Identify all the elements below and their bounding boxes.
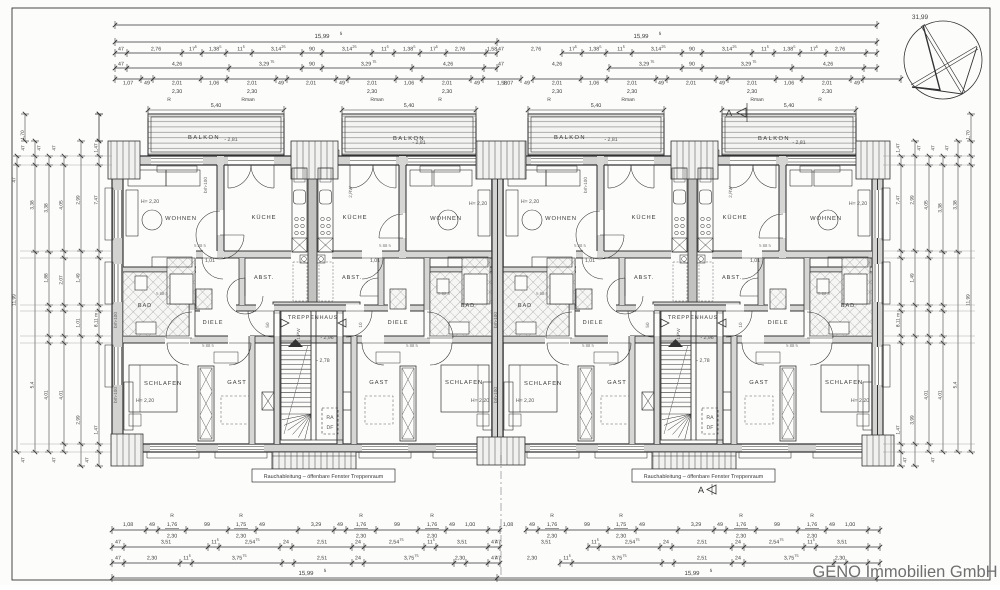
- svg-text:90: 90: [309, 46, 315, 52]
- svg-text:1,58: 1,58: [487, 46, 497, 52]
- svg-text:SCHLAFEN: SCHLAFEN: [445, 379, 483, 386]
- svg-text:5 88 5: 5 88 5: [536, 291, 548, 296]
- svg-text:2,99: 2,99: [76, 195, 82, 205]
- svg-text:3,99: 3,99: [910, 415, 916, 425]
- svg-text:5: 5: [195, 45, 197, 49]
- svg-text:15,99: 15,99: [314, 33, 330, 40]
- svg-text:DIELE: DIELE: [388, 320, 409, 326]
- svg-text:2,01: 2,01: [686, 80, 696, 86]
- svg-text:47: 47: [52, 145, 58, 151]
- svg-text:5,4: 5,4: [953, 381, 959, 388]
- svg-text:5,40: 5,40: [784, 103, 795, 109]
- svg-text:H= 2,20: H= 2,20: [521, 199, 539, 205]
- svg-text:2,54: 2,54: [389, 539, 399, 545]
- svg-text:ABST.: ABST.: [634, 275, 654, 281]
- svg-text:2,76: 2,76: [531, 46, 541, 52]
- svg-text:49: 49: [449, 522, 455, 528]
- svg-text:R: R: [547, 97, 551, 103]
- svg-text:BALKON: BALKON: [554, 134, 586, 141]
- svg-text:1,01: 1,01: [585, 258, 595, 264]
- svg-text:GAST: GAST: [369, 379, 388, 386]
- svg-text:3,38: 3,38: [44, 203, 50, 213]
- svg-text:49: 49: [149, 522, 155, 528]
- svg-text:SCHLAFEN: SCHLAFEN: [144, 380, 182, 387]
- svg-text:5: 5: [793, 45, 795, 49]
- svg-text:99: 99: [584, 522, 590, 528]
- svg-text:WOHNEN: WOHNEN: [810, 215, 842, 222]
- svg-text:1,70: 1,70: [966, 130, 972, 140]
- svg-text:3,14: 3,14: [651, 46, 661, 52]
- svg-text:2,76: 2,76: [835, 46, 845, 52]
- svg-text:7,47: 7,47: [896, 195, 902, 205]
- svg-text:2,51: 2,51: [697, 539, 707, 545]
- svg-text:75: 75: [622, 554, 626, 558]
- svg-text:49: 49: [339, 80, 345, 86]
- svg-text:R: R: [619, 513, 623, 519]
- svg-text:8,11 m: 8,11 m: [94, 313, 100, 327]
- svg-text:49: 49: [529, 522, 535, 528]
- svg-text:2,30: 2,30: [455, 555, 465, 561]
- svg-text:1,76: 1,76: [167, 522, 177, 528]
- svg-text:3,75: 3,75: [232, 555, 242, 561]
- svg-text:1,07: 1,07: [123, 80, 133, 86]
- svg-text:47: 47: [945, 145, 951, 151]
- svg-text:brh-100: brh-100: [583, 177, 588, 193]
- svg-text:4,26: 4,26: [172, 61, 182, 67]
- svg-text:2,01: 2,01: [172, 80, 182, 86]
- svg-text:25: 25: [352, 45, 356, 49]
- svg-text:1,06: 1,06: [784, 80, 794, 86]
- svg-text:49: 49: [854, 80, 860, 86]
- svg-text:1,00: 1,00: [845, 522, 855, 528]
- svg-text:2,01: 2,01: [627, 80, 637, 86]
- svg-text:1,76: 1,76: [356, 522, 366, 528]
- svg-text:1,49: 1,49: [76, 273, 82, 283]
- svg-text:2,99: 2,99: [76, 415, 82, 425]
- svg-text:- 2,96: - 2,96: [320, 335, 333, 341]
- svg-text:5 88 5: 5 88 5: [202, 343, 214, 348]
- svg-text:GAST: GAST: [749, 379, 768, 386]
- svg-text:47: 47: [21, 145, 27, 151]
- svg-text:2,RW: 2,RW: [728, 186, 733, 198]
- svg-text:4,05: 4,05: [59, 200, 65, 210]
- svg-text:2,30: 2,30: [822, 89, 832, 95]
- svg-text:75: 75: [635, 538, 639, 542]
- svg-text:15,99: 15,99: [298, 570, 314, 577]
- svg-text:24: 24: [283, 539, 289, 545]
- svg-text:2,30: 2,30: [367, 89, 377, 95]
- svg-text:2,30: 2,30: [147, 555, 157, 561]
- svg-text:KÜCHE: KÜCHE: [252, 214, 277, 221]
- svg-text:3,14: 3,14: [271, 46, 281, 52]
- svg-text:DIELE: DIELE: [768, 320, 789, 326]
- svg-text:1,38: 1,38: [403, 46, 413, 52]
- svg-text:R: R: [739, 513, 743, 519]
- svg-text:3,29: 3,29: [741, 61, 751, 67]
- svg-text:90: 90: [689, 46, 695, 52]
- svg-text:1,01: 1,01: [76, 318, 82, 328]
- svg-text:10: 10: [738, 322, 743, 328]
- svg-text:BAD: BAD: [461, 303, 475, 309]
- svg-text:49: 49: [658, 80, 664, 86]
- svg-text:5: 5: [219, 45, 221, 49]
- svg-text:5: 5: [813, 538, 815, 542]
- svg-text:5 88 5: 5 88 5: [156, 291, 168, 296]
- svg-text:10: 10: [358, 322, 363, 328]
- svg-text:H= 2,20: H= 2,20: [849, 201, 867, 207]
- svg-text:- 2,81: - 2,81: [224, 137, 237, 143]
- svg-text:A: A: [698, 485, 704, 495]
- svg-text:1,06: 1,06: [589, 80, 599, 86]
- svg-text:Rman: Rman: [241, 97, 255, 103]
- svg-text:ABST.: ABST.: [254, 275, 274, 281]
- svg-text:3,29: 3,29: [691, 522, 701, 528]
- svg-text:4,26: 4,26: [823, 61, 833, 67]
- svg-text:24: 24: [735, 539, 741, 545]
- svg-text:4,26: 4,26: [443, 61, 453, 67]
- svg-text:47: 47: [491, 555, 497, 561]
- svg-text:24: 24: [663, 539, 669, 545]
- svg-text:ABST.: ABST.: [342, 275, 362, 281]
- svg-text:3,38: 3,38: [953, 200, 959, 210]
- svg-text:50: 50: [265, 322, 270, 328]
- svg-text:47: 47: [931, 145, 937, 151]
- svg-text:3,75: 3,75: [784, 555, 794, 561]
- svg-text:5: 5: [575, 45, 577, 49]
- svg-text:47: 47: [115, 539, 121, 545]
- svg-text:49: 49: [829, 522, 835, 528]
- svg-text:1,75: 1,75: [616, 522, 626, 528]
- svg-text:- 2,78: - 2,78: [316, 358, 329, 364]
- svg-text:KÜCHE: KÜCHE: [343, 214, 368, 221]
- svg-text:brh-100: brh-100: [113, 312, 118, 328]
- svg-text:2,30: 2,30: [627, 89, 637, 95]
- svg-text:5 88 5: 5 88 5: [379, 243, 391, 248]
- svg-text:75: 75: [650, 60, 654, 64]
- svg-text:2,01: 2,01: [747, 80, 757, 86]
- svg-text:DIELE: DIELE: [203, 320, 224, 326]
- svg-text:R: R: [359, 513, 363, 519]
- svg-text:31,99: 31,99: [912, 14, 929, 21]
- svg-text:99: 99: [394, 522, 400, 528]
- svg-text:5: 5: [217, 538, 219, 542]
- svg-text:1,06: 1,06: [404, 80, 414, 86]
- svg-text:2,01: 2,01: [552, 80, 562, 86]
- svg-text:2,51: 2,51: [317, 555, 327, 561]
- svg-text:BALKON: BALKON: [188, 134, 220, 141]
- svg-text:5 88 5: 5 88 5: [582, 343, 594, 348]
- svg-text:5,4: 5,4: [30, 381, 36, 388]
- svg-text:2,01: 2,01: [306, 80, 316, 86]
- svg-text:1,38: 1,38: [209, 46, 219, 52]
- svg-text:47: 47: [118, 61, 124, 67]
- svg-text:1,76: 1,76: [547, 522, 557, 528]
- svg-text:Rauchableitung – öffenbare Fen: Rauchableitung – öffenbare Fenster Trepp…: [264, 474, 384, 480]
- svg-text:47: 47: [931, 457, 937, 463]
- svg-text:24: 24: [735, 555, 741, 561]
- svg-text:4,01: 4,01: [44, 390, 50, 400]
- svg-text:2,01: 2,01: [442, 80, 452, 86]
- svg-text:TREPPENHAUS: TREPPENHAUS: [668, 315, 718, 321]
- svg-text:5 88 5: 5 88 5: [574, 243, 586, 248]
- svg-text:5: 5: [433, 538, 435, 542]
- svg-text:47: 47: [37, 145, 43, 151]
- svg-text:KÜCHE: KÜCHE: [723, 214, 748, 221]
- svg-text:1,00: 1,00: [465, 522, 475, 528]
- svg-text:3,14: 3,14: [342, 46, 352, 52]
- svg-text:- 2,78: - 2,78: [696, 358, 709, 364]
- svg-text:ABST.: ABST.: [722, 275, 742, 281]
- svg-text:3,29: 3,29: [311, 522, 321, 528]
- svg-text:Rman: Rman: [370, 97, 384, 103]
- svg-text:BAD: BAD: [841, 303, 855, 309]
- svg-text:H= 2,20: H= 2,20: [471, 398, 489, 404]
- svg-text:47: 47: [52, 457, 58, 463]
- svg-text:3,38: 3,38: [30, 200, 36, 210]
- svg-text:2,30: 2,30: [247, 89, 257, 95]
- svg-text:R: R: [239, 513, 243, 519]
- svg-text:49: 49: [278, 80, 284, 86]
- svg-text:25: 25: [281, 45, 285, 49]
- svg-text:3,29: 3,29: [361, 61, 371, 67]
- svg-text:3,29: 3,29: [259, 61, 269, 67]
- svg-text:5 88 5: 5 88 5: [818, 291, 830, 296]
- svg-text:5: 5: [569, 554, 571, 558]
- svg-text:5: 5: [243, 45, 245, 49]
- svg-text:brh-100: brh-100: [493, 312, 498, 328]
- svg-text:1,08: 1,08: [503, 522, 513, 528]
- svg-text:H= 2,20: H= 2,20: [469, 201, 487, 207]
- svg-text:5: 5: [597, 538, 599, 542]
- svg-text:2,54: 2,54: [245, 539, 255, 545]
- svg-text:75: 75: [752, 60, 756, 64]
- svg-text:Rman: Rman: [750, 97, 764, 103]
- svg-text:5 88 5: 5 88 5: [194, 243, 206, 248]
- svg-text:5: 5: [623, 45, 625, 49]
- svg-text:15,99: 15,99: [684, 570, 700, 577]
- svg-text:47: 47: [903, 457, 909, 463]
- svg-text:5: 5: [599, 45, 601, 49]
- svg-text:75: 75: [255, 538, 259, 542]
- svg-text:75: 75: [414, 554, 418, 558]
- svg-text:2,76: 2,76: [455, 46, 465, 52]
- svg-text:47: 47: [21, 457, 27, 463]
- svg-text:KÜCHE: KÜCHE: [632, 214, 657, 221]
- svg-text:2,30: 2,30: [552, 89, 562, 95]
- svg-text:- 2,81: - 2,81: [792, 140, 805, 146]
- svg-text:2,01: 2,01: [247, 80, 257, 86]
- svg-text:5: 5: [413, 45, 415, 49]
- svg-text:DF: DF: [327, 425, 334, 431]
- svg-text:1,88: 1,88: [44, 273, 50, 283]
- svg-text:- 2,81: - 2,81: [604, 137, 617, 143]
- svg-text:RA: RA: [326, 415, 334, 421]
- svg-text:- 2,96: - 2,96: [700, 335, 713, 341]
- svg-text:1,01: 1,01: [370, 258, 380, 264]
- svg-text:R: R: [170, 513, 174, 519]
- svg-text:90: 90: [309, 61, 315, 67]
- svg-text:2,51: 2,51: [317, 539, 327, 545]
- svg-text:GAST: GAST: [607, 379, 626, 386]
- svg-text:75: 75: [794, 554, 798, 558]
- svg-text:49: 49: [474, 80, 480, 86]
- svg-text:47: 47: [115, 555, 121, 561]
- svg-text:3,29: 3,29: [639, 61, 649, 67]
- svg-text:R: R: [167, 97, 171, 103]
- svg-text:2,51: 2,51: [697, 555, 707, 561]
- svg-text:Rauchableitung – öffenbare Fen: Rauchableitung – öffenbare Fenster Trepp…: [644, 474, 764, 480]
- svg-text:75: 75: [372, 60, 376, 64]
- svg-text:4,01: 4,01: [924, 390, 930, 400]
- svg-text:5,40: 5,40: [211, 103, 222, 109]
- svg-text:90: 90: [689, 61, 695, 67]
- svg-text:2,30: 2,30: [835, 555, 845, 561]
- svg-text:75: 75: [242, 554, 246, 558]
- svg-text:5,40: 5,40: [404, 103, 415, 109]
- svg-text:11,99: 11,99: [12, 294, 18, 306]
- svg-text:3,75: 3,75: [404, 555, 414, 561]
- svg-text:49: 49: [259, 522, 265, 528]
- svg-text:BALKON: BALKON: [758, 135, 790, 142]
- svg-text:2,76: 2,76: [151, 46, 161, 52]
- svg-text:R: R: [430, 513, 434, 519]
- svg-text:5 88 5: 5 88 5: [406, 343, 418, 348]
- svg-text:1,01: 1,01: [750, 258, 760, 264]
- svg-text:47: 47: [498, 61, 504, 67]
- svg-text:brh-100: brh-100: [113, 387, 118, 403]
- svg-text:RA: RA: [706, 415, 714, 421]
- svg-text:24: 24: [355, 555, 361, 561]
- svg-text:WOHNEN: WOHNEN: [545, 215, 577, 222]
- svg-text:3,51: 3,51: [457, 539, 467, 545]
- svg-text:1,76: 1,76: [736, 522, 746, 528]
- svg-text:1,76: 1,76: [427, 522, 437, 528]
- svg-text:47: 47: [12, 177, 18, 183]
- svg-text:2,54: 2,54: [625, 539, 635, 545]
- svg-text:GENO Immobilien GmbH: GENO Immobilien GmbH: [812, 563, 997, 581]
- svg-text:TREPPENHAUS: TREPPENHAUS: [288, 315, 338, 321]
- svg-text:47: 47: [917, 145, 923, 151]
- svg-text:BALKON: BALKON: [393, 135, 425, 142]
- svg-text:2,30: 2,30: [442, 89, 452, 95]
- svg-text:75: 75: [779, 538, 783, 542]
- svg-text:1,47: 1,47: [94, 425, 100, 435]
- svg-text:5: 5: [816, 45, 818, 49]
- svg-text:47: 47: [85, 457, 91, 463]
- svg-text:2,30: 2,30: [747, 89, 757, 95]
- svg-text:2,RW: 2,RW: [348, 186, 353, 198]
- svg-text:1,75: 1,75: [236, 522, 246, 528]
- svg-text:DIELE: DIELE: [583, 320, 604, 326]
- svg-text:WOHNEN: WOHNEN: [165, 215, 197, 222]
- svg-text:24: 24: [355, 539, 361, 545]
- svg-text:1,58: 1,58: [497, 80, 507, 86]
- svg-text:1,01: 1,01: [205, 258, 215, 264]
- svg-text:1,47: 1,47: [94, 143, 100, 153]
- svg-text:7,47: 7,47: [94, 195, 100, 205]
- svg-text:R: R: [810, 513, 814, 519]
- svg-text:5 88 5: 5 88 5: [786, 343, 798, 348]
- svg-text:Rman: Rman: [621, 97, 635, 103]
- svg-text:47: 47: [498, 46, 504, 52]
- svg-text:3,14: 3,14: [722, 46, 732, 52]
- svg-text:11,99: 11,99: [966, 294, 972, 306]
- svg-text:4,01: 4,01: [938, 390, 944, 400]
- svg-text:5: 5: [387, 45, 389, 49]
- svg-text:H= 2,20: H= 2,20: [851, 398, 869, 404]
- svg-text:15,99: 15,99: [633, 33, 649, 40]
- svg-text:5: 5: [189, 554, 191, 558]
- svg-text:2,99: 2,99: [910, 195, 916, 205]
- svg-text:1,PW: 1,PW: [676, 328, 681, 340]
- svg-text:25: 25: [661, 45, 665, 49]
- svg-text:99: 99: [204, 522, 210, 528]
- svg-text:3,38: 3,38: [938, 203, 944, 213]
- svg-text:47: 47: [491, 539, 497, 545]
- svg-text:2,01: 2,01: [822, 80, 832, 86]
- svg-text:50: 50: [645, 322, 650, 328]
- svg-text:4,26: 4,26: [552, 61, 562, 67]
- svg-text:3,75: 3,75: [612, 555, 622, 561]
- svg-text:brh-100: brh-100: [203, 177, 208, 193]
- svg-text:brh-100: brh-100: [493, 387, 498, 403]
- svg-text:1,06: 1,06: [209, 80, 219, 86]
- svg-text:GAST: GAST: [227, 379, 246, 386]
- svg-text:5 88 5: 5 88 5: [759, 243, 771, 248]
- svg-text:5: 5: [436, 45, 438, 49]
- svg-text:49: 49: [719, 80, 725, 86]
- svg-text:49: 49: [524, 80, 530, 86]
- svg-text:2,30: 2,30: [527, 555, 537, 561]
- svg-text:R: R: [818, 97, 822, 103]
- svg-text:8,11 m: 8,11 m: [896, 313, 902, 327]
- svg-text:1,PW: 1,PW: [296, 328, 301, 340]
- svg-text:SCHLAFEN: SCHLAFEN: [825, 379, 863, 386]
- svg-text:25: 25: [732, 45, 736, 49]
- svg-text:A: A: [726, 108, 732, 118]
- svg-text:1,49: 1,49: [910, 273, 916, 283]
- svg-text:2,30: 2,30: [172, 89, 182, 95]
- svg-text:5 88 5: 5 88 5: [438, 291, 450, 296]
- svg-text:3,51: 3,51: [161, 539, 171, 545]
- svg-text:1,38: 1,38: [783, 46, 793, 52]
- svg-text:49: 49: [144, 80, 150, 86]
- svg-text:49: 49: [717, 522, 723, 528]
- svg-text:DF: DF: [707, 425, 714, 431]
- svg-text:75: 75: [399, 538, 403, 542]
- svg-text:99: 99: [774, 522, 780, 528]
- svg-text:2,54: 2,54: [769, 539, 779, 545]
- svg-text:BAD: BAD: [138, 303, 152, 309]
- svg-text:R: R: [550, 513, 554, 519]
- svg-text:49: 49: [639, 522, 645, 528]
- svg-text:1,08: 1,08: [123, 522, 133, 528]
- svg-text:75: 75: [270, 60, 274, 64]
- svg-text:H= 2,20: H= 2,20: [136, 398, 154, 404]
- svg-text:R: R: [438, 97, 442, 103]
- svg-text:2,07: 2,07: [59, 275, 65, 285]
- svg-text:3,51: 3,51: [541, 539, 551, 545]
- svg-text:1,47: 1,47: [896, 425, 902, 435]
- svg-text:4,01: 4,01: [59, 390, 65, 400]
- svg-text:H= 2,20: H= 2,20: [141, 199, 159, 205]
- svg-text:WOHNEN: WOHNEN: [430, 215, 462, 222]
- svg-text:BAD: BAD: [518, 303, 532, 309]
- svg-text:SCHLAFEN: SCHLAFEN: [524, 380, 562, 387]
- svg-text:5,40: 5,40: [591, 103, 602, 109]
- svg-text:47: 47: [118, 46, 124, 52]
- svg-text:3,51: 3,51: [837, 539, 847, 545]
